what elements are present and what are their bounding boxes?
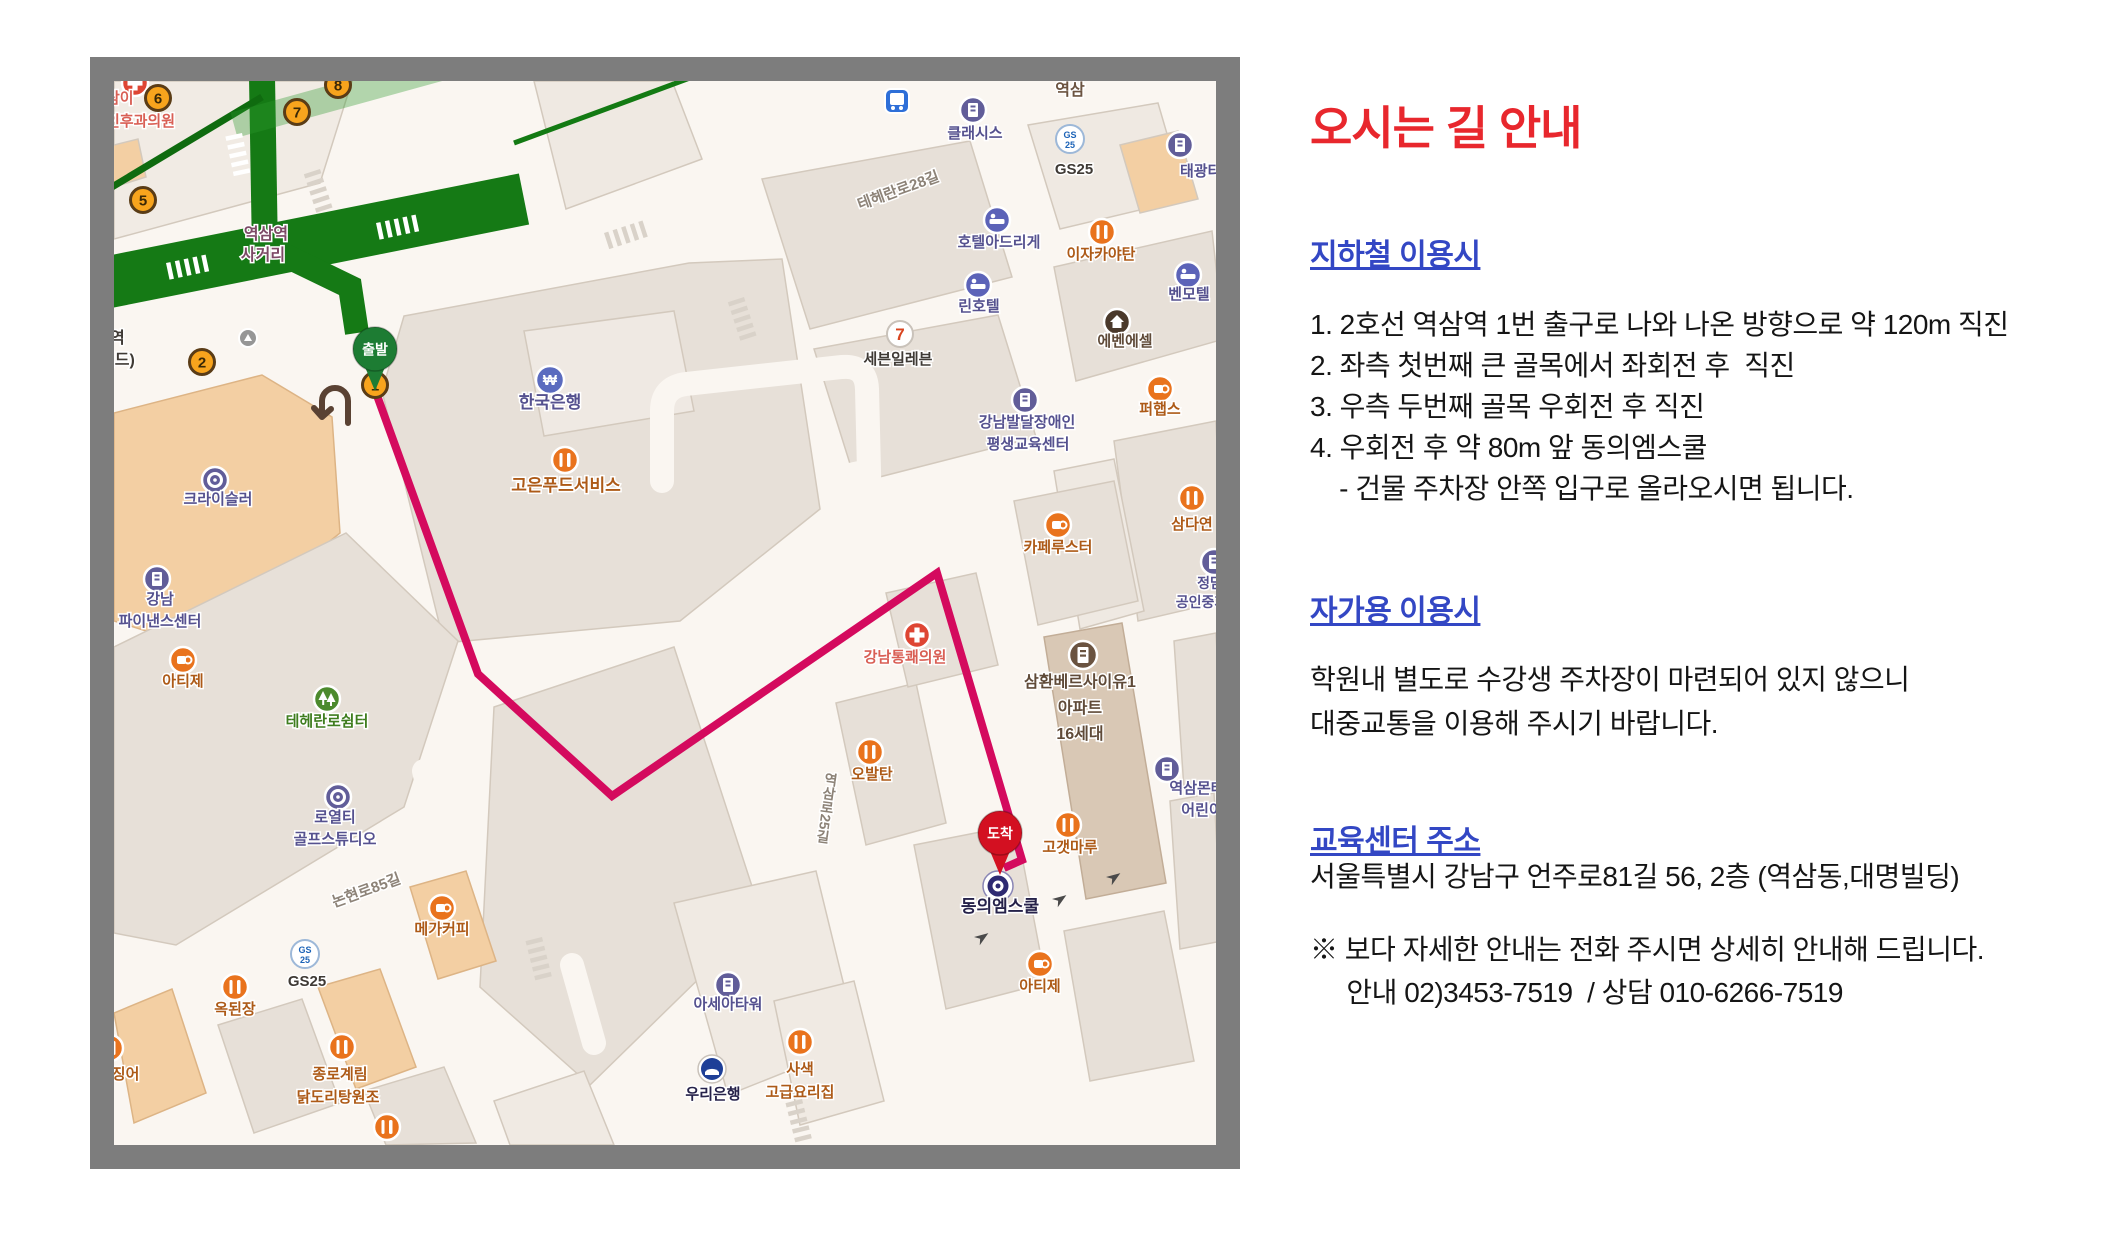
park-icon (314, 686, 340, 712)
map-canvas: ₩GS257GS25 삼이인후과의원역삼역사거리역빌드)한국은행고은푸드서비스역… (114, 81, 1216, 1145)
svg-text:₩: ₩ (543, 372, 558, 389)
map-label: 아티제 (162, 673, 203, 690)
map-label: 강남 (146, 590, 174, 608)
svg-text:도착: 도착 (987, 826, 1013, 842)
cafe-icon (1027, 951, 1053, 977)
section-heading-car: 자가용 이용시 (1310, 586, 1480, 630)
cafe-icon (1147, 376, 1173, 402)
map-label: 아티제 (1019, 978, 1060, 995)
bldg-icon (1154, 756, 1180, 782)
text-line: 서울특별시 강남구 언주로81길 56, 2층 (역삼동,대명빌딩) (1310, 856, 1959, 897)
cafe-icon (1045, 512, 1071, 538)
map-label: 삼이 (114, 90, 134, 107)
map-label: 호텔아드리게 (958, 233, 1041, 251)
map-label: 평생교육센터 (987, 435, 1070, 453)
subway-exit-badge: 6 (146, 86, 171, 111)
map-label: 우리은행 (685, 1086, 740, 1103)
svg-text:25: 25 (1065, 140, 1075, 150)
map-label: 논현로85길 (330, 870, 403, 911)
svg-text:25: 25 (300, 955, 310, 965)
map-label: 삼환베르사이유1 (1024, 673, 1136, 691)
houseDark-icon (1104, 309, 1130, 335)
svg-text:7: 7 (895, 325, 904, 344)
cafe-icon (429, 895, 455, 921)
map-label: 한국은행 (519, 393, 582, 412)
map-label: 이자카야탄 (1066, 246, 1135, 263)
phone-note: ※ 보다 자세한 안내는 전화 주시면 상세히 안내해 드립니다. 안내 02)… (1310, 928, 1984, 1014)
map-label: 정담 (1197, 575, 1216, 591)
svg-text:5: 5 (139, 193, 147, 210)
map-label: 빌드) (114, 351, 135, 369)
map-label: 강남통쾌의원 (864, 648, 947, 666)
text-line: 대중교통을 이용해 주시기 바랍니다. (1310, 702, 1909, 746)
subway-exit-badge: 2 (190, 350, 215, 375)
map-label: 역삼몬테 (1169, 780, 1216, 797)
subway-exit-badge: 8 (326, 81, 351, 98)
map-label: 닭도리탕원조 (297, 1088, 380, 1106)
map-label: 에벤에셀 (1097, 333, 1152, 350)
map-label: 오징어 (114, 1066, 139, 1083)
map-label: 클래시스 (947, 125, 1002, 142)
bldg-icon (1167, 132, 1193, 158)
rest-icon (1055, 812, 1081, 838)
map-label: 파이낸스센터 (119, 613, 202, 630)
map-label: 린호텔 (958, 297, 999, 315)
cross-icon (904, 622, 930, 648)
ring-icon (202, 467, 228, 493)
bldg-icon (960, 97, 986, 123)
svg-text:GS: GS (1063, 130, 1076, 140)
page-title: 오시는 길 안내 (1310, 92, 1581, 158)
grayc-icon (239, 329, 257, 347)
cafe-icon (170, 647, 196, 673)
hotel-icon (1175, 262, 1201, 288)
map-label: 역삼로25길 (814, 771, 840, 846)
map-label: 벤모텔 (1168, 285, 1209, 303)
map-label: 테헤란로쉼터 (286, 712, 369, 730)
ring-icon (325, 784, 351, 810)
rest-icon (787, 1029, 813, 1055)
center-address: 서울특별시 강남구 언주로81길 56, 2층 (역삼동,대명빌딩) (1310, 856, 1959, 897)
map-image: ₩GS257GS25 삼이인후과의원역삼역사거리역빌드)한국은행고은푸드서비스역… (90, 57, 1240, 1169)
svg-text:7: 7 (293, 105, 301, 122)
rest-icon (374, 1114, 400, 1140)
map-label: 고은푸드서비스 (511, 476, 621, 495)
text-line: 2. 좌측 첫번째 큰 골목에서 좌회전 후 직진 (1310, 345, 2009, 386)
svg-text:출발: 출발 (362, 342, 388, 358)
svg-text:6: 6 (154, 91, 162, 108)
gs25-icon: GS25 (1056, 125, 1084, 153)
map-label: 공인중개사 (1176, 594, 1216, 610)
rest-icon (1089, 219, 1115, 245)
rest-icon (329, 1034, 355, 1060)
gs25-icon: GS25 (291, 940, 319, 968)
map-label: GS25 (1055, 161, 1093, 178)
map-label: 세븐일레븐 (863, 351, 932, 368)
text-line: 3. 우측 두번째 골목 우회전 후 직진 (1310, 386, 2009, 427)
map-label: 역삼 (1055, 81, 1085, 99)
text-line: 1. 2호선 역삼역 1번 출구로 나와 나온 방향으로 약 120m 직진 (1310, 304, 2009, 345)
map-label: 사색 (786, 1061, 814, 1078)
section-heading-subway: 지하철 이용시 (1310, 230, 1480, 274)
map-label: 크라이슬러 (183, 491, 252, 508)
map-label: 삼다연 (1171, 516, 1212, 533)
text-line: - 건물 주차장 안쪽 입구로 올라오시면 됩니다. (1310, 468, 2009, 509)
rest-icon (222, 974, 248, 1000)
map-label: 태광타워 (1180, 162, 1216, 180)
map-label: 고급요리집 (765, 1083, 834, 1101)
hotel-icon (984, 207, 1010, 233)
map-label: 옥된장 (214, 1000, 256, 1018)
bldg-icon (1012, 387, 1038, 413)
subway-directions-list: 1. 2호선 역삼역 1번 출구로 나와 나온 방향으로 약 120m 직진2.… (1310, 304, 2009, 509)
woori-icon (698, 1055, 726, 1083)
map-label: 메가커피 (414, 921, 469, 938)
rest-icon (1179, 485, 1205, 511)
bankW-icon: ₩ (536, 366, 564, 394)
svg-text:GS: GS (298, 945, 311, 955)
map-label: 인후과의원 (114, 112, 175, 130)
map-label: 역 (114, 329, 125, 347)
map-label: 퍼햅스 (1139, 401, 1181, 418)
bus-icon (885, 89, 909, 113)
crosswalk (604, 220, 648, 249)
car-directions-text: 학원내 별도로 수강생 주차장이 마련되어 있지 않으니대중교통을 이용해 주시… (1310, 658, 1909, 746)
seven-icon: 7 (887, 321, 913, 347)
section-heading-address: 교육센터 주소 (1310, 816, 1480, 860)
map-label: 카페루스터 (1023, 539, 1092, 556)
svg-text:2: 2 (198, 355, 206, 372)
text-line: 학원내 별도로 수강생 주차장이 마련되어 있지 않으니 (1310, 658, 1909, 702)
map-label: 오발탄 (851, 766, 893, 783)
svg-text:8: 8 (334, 81, 342, 95)
map-label: 동의엠스쿨 (961, 897, 1040, 916)
directions-panel: 오시는 길 안내 지하철 이용시 1. 2호선 역삼역 1번 출구로 나와 나온… (1310, 0, 2100, 1251)
map-label: 아세아타워 (693, 996, 762, 1013)
text-line: 안내 02)3453-7519 / 상담 010-6266-7519 (1310, 971, 1984, 1014)
subway-exit-badge: 7 (285, 100, 310, 125)
map-label: 종로계림 (312, 1065, 367, 1083)
text-line: ※ 보다 자세한 안내는 전화 주시면 상세히 안내해 드립니다. (1310, 928, 1984, 971)
bldg-icon (1201, 549, 1216, 575)
bldg-icon (144, 566, 170, 592)
map-label: 로열티 (314, 809, 355, 826)
map-label: 역삼역 (244, 225, 288, 243)
hotel-icon (965, 272, 991, 298)
map-label: 어린이 (1181, 801, 1216, 819)
map-label: 강남발달장애인 (979, 413, 1076, 431)
map-label: 16세대 (1056, 725, 1103, 743)
rest-icon (857, 739, 883, 765)
rest-icon (552, 447, 578, 473)
subway-exit-badge: 5 (131, 188, 156, 213)
map-label: 골프스튜디오 (294, 831, 377, 848)
text-line: 4. 우회전 후 약 80m 앞 동의엠스쿨 (1310, 427, 2009, 468)
map-label: 아파트 (1058, 699, 1102, 717)
bldg-icon (715, 972, 741, 998)
apt-icon (1069, 641, 1097, 669)
map-label: GS25 (288, 973, 326, 990)
map-label: 고갯마루 (1042, 839, 1097, 856)
map-label: 사거리 (241, 246, 285, 264)
